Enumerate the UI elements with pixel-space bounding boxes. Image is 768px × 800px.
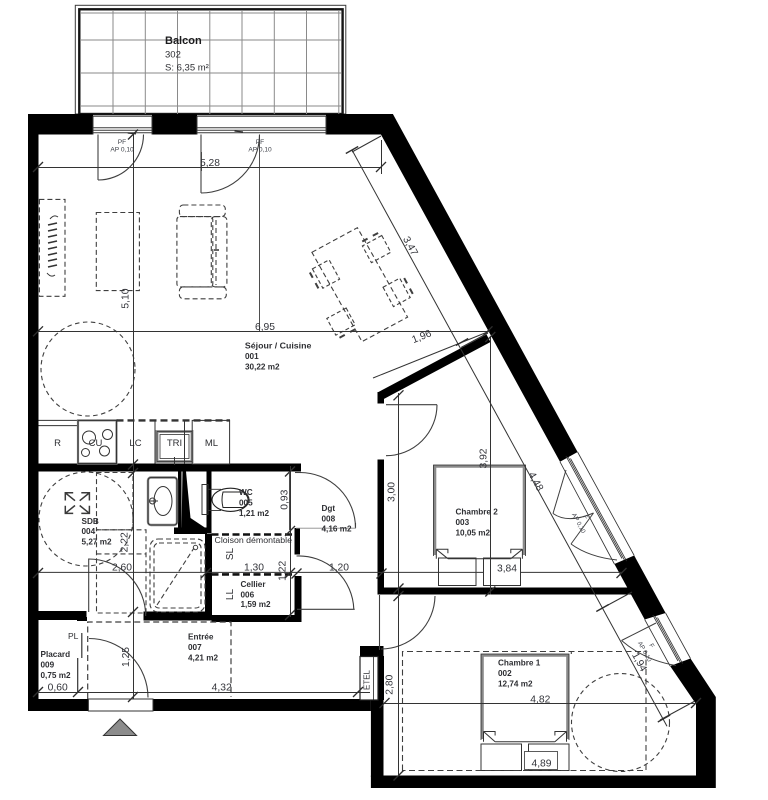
svg-text:LL: LL: [225, 589, 236, 601]
svg-text:PF: PF: [118, 139, 126, 146]
svg-text:4,21 m2: 4,21 m2: [188, 654, 218, 663]
svg-text:2,80: 2,80: [385, 674, 396, 694]
svg-text:LC: LC: [129, 438, 141, 449]
svg-text:SL: SL: [225, 547, 236, 560]
svg-text:Entrée: Entrée: [188, 633, 214, 642]
svg-text:Balcon: Balcon: [165, 35, 202, 47]
svg-text:F: F: [647, 642, 655, 649]
svg-text:4,32: 4,32: [212, 683, 232, 694]
svg-text:Chambre 1: Chambre 1: [498, 659, 541, 668]
svg-text:Dgt: Dgt: [322, 504, 336, 513]
svg-text:30,22 m2: 30,22 m2: [245, 362, 280, 371]
svg-text:WC: WC: [239, 488, 253, 497]
svg-text:AP 0,10: AP 0,10: [110, 147, 134, 154]
svg-text:PF: PF: [256, 139, 264, 146]
svg-text:ML: ML: [205, 438, 218, 449]
svg-text:PL: PL: [68, 631, 79, 641]
svg-text:5,28: 5,28: [200, 158, 220, 169]
svg-text:6,95: 6,95: [255, 322, 275, 333]
svg-text:SDB: SDB: [82, 517, 99, 526]
svg-text:1,22: 1,22: [278, 561, 289, 581]
svg-text:1,59 m2: 1,59 m2: [241, 600, 271, 609]
svg-text:007: 007: [188, 643, 202, 652]
svg-text:004: 004: [82, 527, 96, 536]
svg-text:5,27 m2: 5,27 m2: [82, 538, 112, 547]
svg-text:0,93: 0,93: [279, 489, 290, 509]
svg-text:Chambre 2: Chambre 2: [456, 507, 499, 516]
svg-text:S: 6,35 m²: S: 6,35 m²: [165, 63, 209, 74]
svg-text:1,21 m2: 1,21 m2: [239, 509, 269, 518]
svg-text:R: R: [54, 438, 61, 449]
svg-text:ETEL: ETEL: [363, 669, 372, 690]
svg-text:3,00: 3,00: [387, 482, 398, 502]
svg-text:1,96: 1,96: [411, 328, 434, 346]
svg-text:5,10: 5,10: [121, 288, 132, 308]
svg-text:005: 005: [239, 499, 253, 508]
svg-text:4,82: 4,82: [530, 694, 550, 705]
svg-text:10,05 m2: 10,05 m2: [456, 528, 491, 537]
svg-text:1,30: 1,30: [244, 562, 264, 573]
svg-text:4,48: 4,48: [526, 470, 545, 493]
svg-text:001: 001: [245, 352, 259, 361]
svg-text:Cloison démontable: Cloison démontable: [215, 536, 293, 545]
svg-text:1,20: 1,20: [329, 562, 349, 573]
svg-text:Cellier: Cellier: [241, 580, 267, 589]
svg-text:Séjour / Cuisine: Séjour / Cuisine: [245, 342, 312, 351]
svg-text:12,74 m2: 12,74 m2: [498, 679, 533, 688]
svg-text:4,16 m2: 4,16 m2: [322, 525, 352, 534]
svg-text:1,25: 1,25: [121, 647, 132, 667]
svg-text:CU: CU: [89, 438, 103, 449]
svg-text:3,47: 3,47: [400, 235, 419, 258]
svg-text:009: 009: [41, 661, 55, 670]
svg-text:3,92: 3,92: [479, 448, 490, 468]
svg-text:0,75 m2: 0,75 m2: [41, 671, 71, 680]
svg-text:4,89: 4,89: [531, 759, 551, 770]
svg-text:Placard: Placard: [41, 650, 71, 659]
svg-text:0,60: 0,60: [48, 683, 68, 694]
svg-text:AP 0,10: AP 0,10: [248, 147, 272, 154]
svg-text:TRI: TRI: [167, 438, 182, 449]
svg-text:006: 006: [241, 590, 255, 599]
svg-text:002: 002: [498, 669, 512, 678]
svg-text:3,84: 3,84: [497, 564, 517, 575]
svg-text:2,22: 2,22: [119, 532, 130, 552]
svg-text:2,60: 2,60: [112, 562, 132, 573]
svg-text:302: 302: [165, 50, 181, 61]
svg-text:008: 008: [322, 514, 336, 523]
svg-text:003: 003: [456, 518, 470, 527]
